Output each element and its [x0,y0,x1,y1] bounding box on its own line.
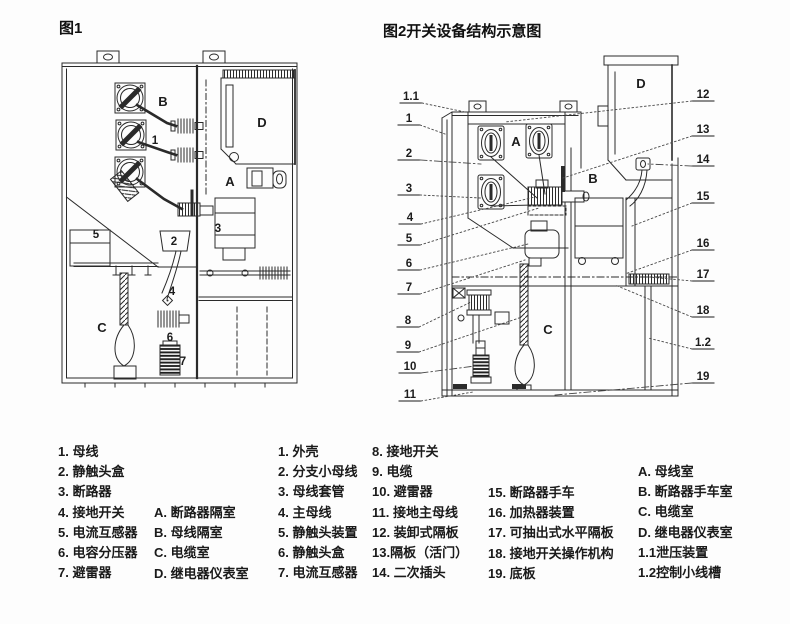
legend-item: 9. 电缆 [372,462,468,482]
callout-label: 12 [697,89,710,101]
callout-leader [632,203,692,226]
callout-label: 6 [406,258,412,270]
legend-item: D. 继电器仪表室 [154,564,249,584]
legend-item: C. 电缆室 [638,502,733,522]
legend-item: 16. 加热器装置 [488,503,614,523]
callout-leader [420,195,481,198]
legend-column-fig2-rooms: A. 母线室B. 断路器手车室C. 电缆室D. 继电器仪表室1.1泄压装置1.2… [638,462,733,583]
legend-item: 1. 外壳 [278,442,357,462]
legend-column-fig1-rooms: A. 断路器隔室B. 母线隔室C. 电缆室D. 继电器仪表室 [154,503,249,584]
callout-label: 2 [406,148,412,160]
spout-bushing [478,126,504,160]
callout-label: D [257,115,266,130]
callout-label: 6 [167,332,173,344]
legend-item: 5. 静触头装置 [278,523,357,543]
callout-label: 2 [171,236,177,248]
callout-label: 16 [697,238,710,250]
legend-column-fig2-parts-15-19: 15. 断路器手车16. 加热器装置17. 可抽出式水平隔板18. 接地开关操作… [488,483,614,584]
legend-item: A. 断路器隔室 [154,503,249,523]
callout-label: 7 [180,356,186,368]
callout-label: A [225,174,235,189]
callout-label: 9 [405,340,411,352]
legend-item: 3. 母线套管 [278,482,357,502]
legend-item: 14. 二次插头 [372,563,468,583]
legend-item: 10. 避雷器 [372,482,468,502]
legend-item: C. 电缆室 [154,543,249,563]
figure1-drawing: B1DA3254C67 [40,45,310,390]
legend-item: 13.隔板（活门） [372,543,468,563]
breaker-truck [575,198,672,286]
busbar-compartment [67,83,204,267]
callout-label: 18 [697,305,710,317]
callout-label: D [636,76,645,91]
callout-label: 14 [697,154,710,166]
legend-item: 6. 电容分压器 [58,543,137,563]
callout-leader [420,244,528,270]
legend-item: 4. 主母线 [278,503,357,523]
cable-compartment [114,273,189,379]
legend-item: 2. 静触头盒 [58,462,137,482]
legend-column-fig2-parts-1-7: 1. 外壳2. 分支小母线3. 母线套管4. 主母线5. 静触头装置6. 静触头… [278,442,357,583]
catalog-page: 图1 图2开关设备结构示意图 [0,0,790,624]
legend-item: 6. 静触头盒 [278,543,357,563]
callout-label: 1 [406,113,413,125]
callout-label: 13 [697,124,710,136]
callout-label: B [588,171,597,186]
legend-item: A. 母线室 [638,462,733,482]
static-contact-assembly [525,166,589,266]
legend-item: D. 继电器仪表室 [638,523,733,543]
legend-item: 12. 装卸式隔板 [372,523,468,543]
legend-item: B. 母线隔室 [154,523,249,543]
callout-label: 4 [407,212,414,224]
legend-column-fig2-parts-8-14: 8. 接地开关9. 电缆10. 避雷器11. 接地主母线12. 装卸式隔板13.… [372,442,468,583]
callout-label: 3 [215,223,221,235]
callout-label: 8 [405,315,412,327]
cabinet-frame [62,51,297,387]
callout-label: 1 [152,135,159,147]
relay-instrument-compartment [206,70,295,195]
callout-leader [419,318,519,352]
callout-leader [555,383,692,395]
legend-item: 19. 底板 [488,564,614,584]
legend-item: 7. 避雷器 [58,563,137,583]
legend-item: 1.2控制小线槽 [638,563,733,583]
callout-label: 3 [406,183,412,195]
callout-leader [420,260,525,294]
callout-label: 11 [404,389,417,401]
legend-item: 5. 电流互感器 [58,523,137,543]
callout-label: B [158,94,167,109]
spout-bushing [478,175,504,209]
callout-label: 17 [697,269,710,281]
callout-leader [419,302,471,327]
callout-label: A [511,134,521,149]
legend-item: 1.1泄压装置 [638,543,733,563]
busbar-room [468,112,568,248]
legend-item: 18. 接地开关操作机构 [488,544,614,564]
legend-item: 1. 母线 [58,442,137,462]
callout-leader [420,125,445,134]
callout-leader [422,103,465,112]
callout-label: 19 [697,371,710,383]
callout-label: 1.1 [403,91,420,103]
callout-label: C [97,320,107,335]
callout-label: 1.2 [695,337,711,349]
callout-label: 4 [169,286,176,298]
legend-item: 8. 接地开关 [372,442,468,462]
callout-leader [648,338,692,349]
figure2-title: 图2开关设备结构示意图 [383,20,541,41]
bushing-insulator [116,120,146,150]
callout-leader [648,164,692,166]
legend-item: 4. 接地开关 [58,503,137,523]
callout-label: C [543,322,553,337]
legend-item: 11. 接地主母线 [372,503,468,523]
figure1-title: 图1 [59,17,82,38]
callout-leader [615,285,692,317]
callout-label: 15 [697,191,710,203]
callout-label: 10 [404,361,417,373]
callout-leader [420,208,539,245]
figure2-drawing: 1.11234567891011121314151617181.219ABCD [395,48,725,408]
callout-label: 5 [406,233,413,245]
callout-label: 7 [406,282,412,294]
drawout-rails [199,267,292,375]
legend-item: 15. 断路器手车 [488,483,614,503]
spout-bushing [526,124,552,158]
callout-label: 5 [93,229,100,241]
legend-item: 2. 分支小母线 [278,462,357,482]
legend-column-fig1-parts: 1. 母线2. 静触头盒3. 断路器4. 接地开关5. 电流互感器6. 电容分压… [58,442,137,583]
legend-item: 7. 电流互感器 [278,563,357,583]
legend-item: 17. 可抽出式水平隔板 [488,523,614,543]
callout-leader [420,160,481,164]
legend-item: 3. 断路器 [58,482,137,502]
callout-leader [421,366,475,373]
legend-item: B. 断路器手车室 [638,482,733,502]
